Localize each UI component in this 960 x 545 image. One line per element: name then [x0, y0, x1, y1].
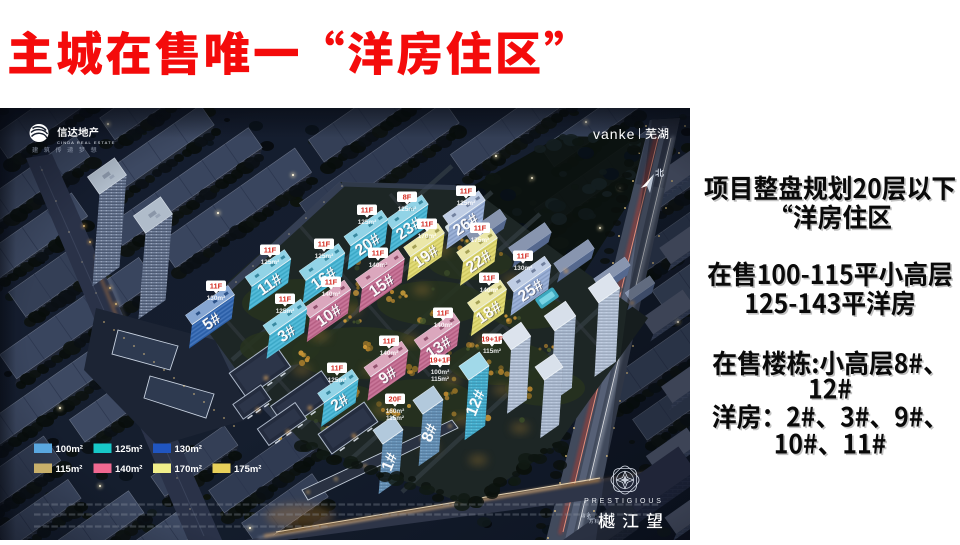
svg-text:11F: 11F	[361, 205, 374, 214]
svg-text:130m²: 130m²	[175, 444, 202, 455]
svg-text:vanke: vanke	[593, 126, 635, 142]
svg-text:11F: 11F	[483, 273, 496, 282]
svg-text:125m²: 125m²	[328, 377, 346, 384]
svg-text:11F: 11F	[474, 223, 487, 232]
svg-text:140m²: 140m²	[480, 287, 498, 294]
svg-text:11F: 11F	[210, 281, 223, 290]
svg-text:170m²: 170m²	[418, 233, 436, 240]
svg-text:19+1F: 19+1F	[481, 334, 503, 343]
svg-text:11F: 11F	[421, 219, 434, 228]
svg-text:140m²: 140m²	[434, 322, 452, 329]
svg-text:125m²: 125m²	[115, 444, 142, 455]
svg-text:11F: 11F	[372, 248, 385, 257]
svg-text:140m²: 140m²	[115, 464, 142, 475]
svg-text:11F: 11F	[325, 277, 338, 286]
svg-text:11F: 11F	[331, 363, 344, 372]
svg-text:CINDA REAL ESTATE: CINDA REAL ESTATE	[57, 140, 115, 145]
svg-text:11F: 11F	[460, 186, 473, 195]
svg-text:8F: 8F	[403, 192, 412, 201]
svg-text:115m²: 115m²	[386, 415, 404, 422]
svg-text:140m²: 140m²	[369, 262, 387, 269]
svg-text:140m²: 140m²	[380, 350, 398, 357]
svg-text:175m²: 175m²	[471, 237, 489, 244]
svg-text:160m²: 160m²	[386, 408, 404, 415]
svg-text:125m²: 125m²	[261, 259, 279, 266]
svg-text:125m²: 125m²	[358, 219, 376, 226]
svg-text:11F: 11F	[437, 308, 450, 317]
svg-text:11F: 11F	[264, 245, 277, 254]
svg-text:115m²: 115m²	[56, 464, 83, 475]
svg-text:175m²: 175m²	[234, 464, 261, 475]
svg-text:19+1F: 19+1F	[429, 355, 451, 364]
svg-text:130m²: 130m²	[514, 265, 532, 272]
svg-text:11F: 11F	[383, 336, 396, 345]
svg-text:170m²: 170m²	[175, 464, 202, 475]
svg-text:20F: 20F	[389, 394, 402, 403]
svg-text:115m²: 115m²	[431, 376, 449, 383]
svg-text:130m²: 130m²	[207, 295, 225, 302]
svg-text:140m²: 140m²	[322, 291, 340, 298]
svg-text:11F: 11F	[279, 294, 292, 303]
svg-text:11F: 11F	[318, 239, 331, 248]
svg-text:125m²: 125m²	[315, 253, 333, 260]
svg-text:11F: 11F	[517, 251, 530, 260]
svg-text:125m²: 125m²	[398, 206, 416, 213]
svg-text:125m²: 125m²	[457, 200, 475, 207]
svg-text:100m²: 100m²	[431, 369, 449, 376]
svg-text:125m²: 125m²	[276, 308, 294, 315]
svg-text:115m²: 115m²	[483, 348, 501, 355]
svg-text:100m²: 100m²	[56, 444, 83, 455]
